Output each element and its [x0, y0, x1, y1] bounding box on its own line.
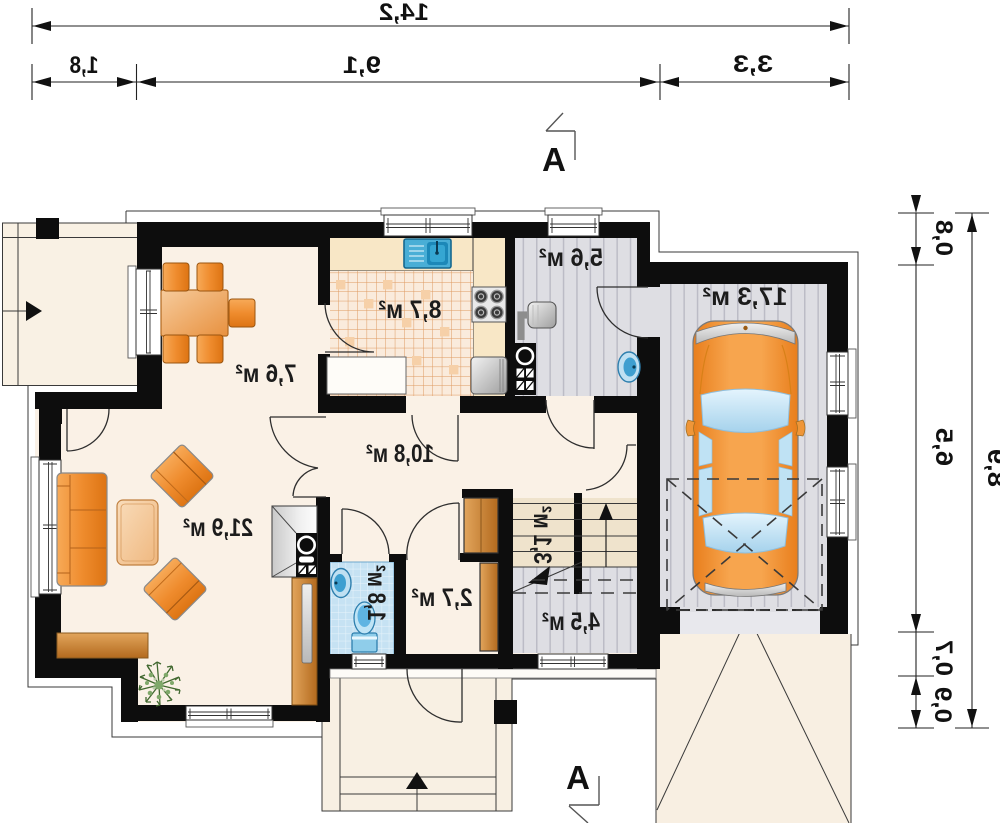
svg-text:2,7 м²: 2,7 м²: [412, 584, 473, 612]
svg-text:7,6 м²: 7,6 м²: [236, 360, 297, 388]
svg-text:1,8 м²: 1,8 м²: [362, 565, 390, 621]
svg-text:17,3 м²: 17,3 м²: [703, 283, 788, 311]
svg-text:1,8: 1,8: [70, 52, 99, 79]
svg-text:21,9 м²: 21,9 м²: [183, 514, 253, 542]
svg-text:8,7 м²: 8,7 м²: [379, 296, 442, 324]
svg-text:3,1 м²: 3,1 м²: [528, 506, 556, 564]
svg-text:8,9: 8,9: [982, 449, 1000, 487]
svg-text:0,9: 0,9: [929, 687, 956, 723]
svg-text:10,8 м²: 10,8 м²: [366, 440, 434, 468]
svg-text:A: A: [566, 759, 590, 796]
svg-text:5,6 м²: 5,6 м²: [539, 244, 603, 272]
svg-text:A: A: [542, 141, 566, 178]
svg-text:4,5 м²: 4,5 м²: [542, 608, 600, 636]
svg-text:9,1: 9,1: [343, 52, 381, 79]
svg-text:6,5: 6,5: [930, 428, 957, 466]
svg-text:0,8: 0,8: [930, 220, 957, 256]
svg-text:14,2: 14,2: [379, 0, 429, 26]
svg-text:0,7: 0,7: [930, 640, 957, 676]
svg-text:3,3: 3,3: [733, 51, 773, 78]
